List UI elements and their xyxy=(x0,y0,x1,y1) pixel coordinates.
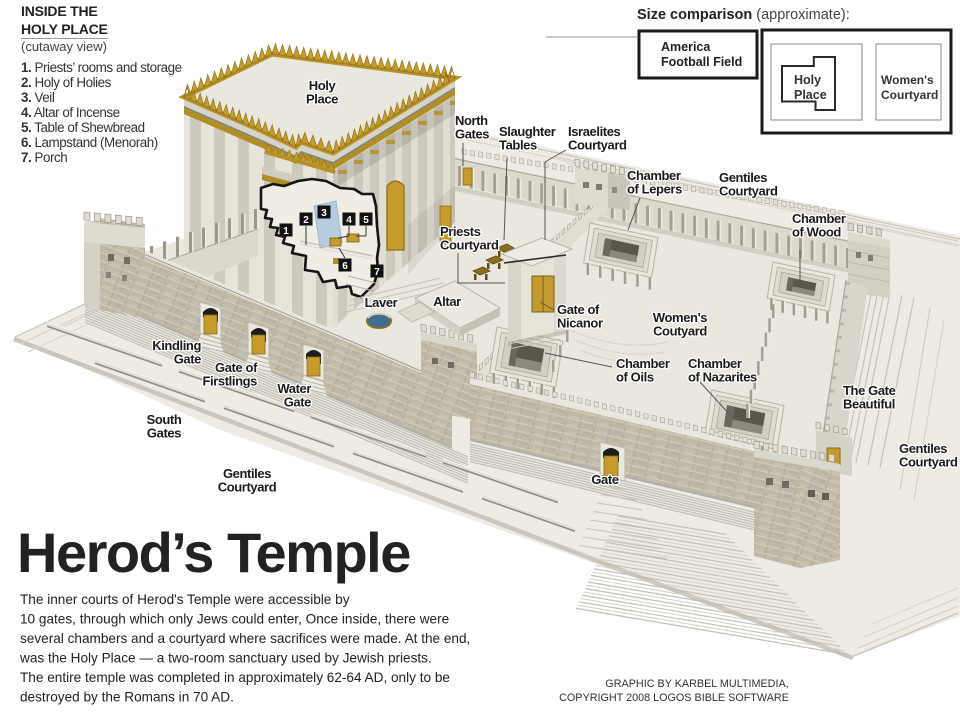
svg-text:2. Holy of Holies: 2. Holy of Holies xyxy=(21,75,112,90)
svg-text:GRAPHIC BY KARBEL MULTIMEDIA,: GRAPHIC BY KARBEL MULTIMEDIA, xyxy=(605,678,788,690)
svg-text:Altar: Altar xyxy=(433,294,461,309)
svg-text:Gate: Gate xyxy=(284,395,311,410)
svg-text:Coutyard: Coutyard xyxy=(653,324,707,339)
svg-text:3: 3 xyxy=(321,208,327,219)
svg-text:Courtyard: Courtyard xyxy=(440,238,499,253)
svg-text:Holy: Holy xyxy=(794,73,821,87)
svg-text:Beautiful: Beautiful xyxy=(843,397,895,412)
svg-text:1. Priests’ rooms and storage: 1. Priests’ rooms and storage xyxy=(21,60,182,75)
svg-text:Courtyard: Courtyard xyxy=(568,138,627,153)
svg-text:The inner courts of Herod's Te: The inner courts of Herod's Temple were … xyxy=(20,592,350,607)
svg-text:several chambers and a courtya: several chambers and a courtyard where s… xyxy=(20,631,470,646)
svg-text:Gates: Gates xyxy=(455,127,489,142)
svg-text:5. Table of Shewbread: 5. Table of Shewbread xyxy=(21,120,145,135)
svg-text:6. Lampstand (Menorah): 6. Lampstand (Menorah) xyxy=(21,135,158,150)
svg-text:Gate: Gate xyxy=(591,472,618,487)
svg-text:Tables: Tables xyxy=(499,138,537,153)
svg-text:COPYRIGHT 2008 LOGOS BIBLE SOF: COPYRIGHT 2008 LOGOS BIBLE SOFTWARE xyxy=(559,692,789,704)
svg-text:5: 5 xyxy=(363,215,369,226)
svg-text:INSIDE THE: INSIDE THE xyxy=(21,3,98,19)
svg-text:America: America xyxy=(661,40,711,54)
svg-text:Place: Place xyxy=(306,92,338,107)
svg-text:HOLY PLACE: HOLY PLACE xyxy=(21,21,108,37)
svg-text:of Oils: of Oils xyxy=(616,370,654,385)
svg-text:Courtyard: Courtyard xyxy=(899,455,958,470)
svg-text:3. Veil: 3. Veil xyxy=(21,90,55,105)
svg-text:7. Porch: 7. Porch xyxy=(21,150,67,165)
svg-text:was the Holy Place — a two-ro: was the Holy Place — a two-room sanctuar… xyxy=(19,651,432,666)
svg-text:of Lepers: of Lepers xyxy=(627,182,682,197)
svg-text:of Wood: of Wood xyxy=(792,225,841,240)
svg-text:2: 2 xyxy=(303,215,309,226)
svg-text:destroyed by the Romans in 70: destroyed by the Romans in 70 AD. xyxy=(20,690,234,705)
svg-text:Gate: Gate xyxy=(174,352,201,367)
svg-text:1: 1 xyxy=(283,226,289,237)
svg-text:Courtyard: Courtyard xyxy=(881,88,938,102)
svg-text:Laver: Laver xyxy=(365,295,398,310)
svg-text:Size comparison (approximate):: Size comparison (approximate): xyxy=(637,7,850,23)
svg-text:Courtyard: Courtyard xyxy=(719,184,778,199)
svg-text:Firstlings: Firstlings xyxy=(202,374,257,389)
svg-text:Courtyard: Courtyard xyxy=(218,480,277,495)
svg-text:of Nazarites: of Nazarites xyxy=(688,370,757,385)
svg-text:Nicanor: Nicanor xyxy=(557,316,603,331)
svg-text:Gates: Gates xyxy=(147,426,181,441)
svg-text:10 gates, through which only J: 10 gates, through which only Jews could … xyxy=(20,612,449,627)
svg-text:4: 4 xyxy=(346,215,352,226)
svg-text:(cutaway view): (cutaway view) xyxy=(21,39,107,54)
svg-text:Women's: Women's xyxy=(881,73,934,87)
svg-text:4. Altar of Incense: 4. Altar of Incense xyxy=(21,105,120,120)
svg-text:Herod’s Temple: Herod’s Temple xyxy=(17,521,410,584)
svg-text:7: 7 xyxy=(374,267,380,278)
svg-text:The entire temple was complete: The entire temple was completed in appro… xyxy=(20,670,450,685)
svg-text:6: 6 xyxy=(342,261,348,272)
svg-text:Football Field: Football Field xyxy=(661,55,742,69)
svg-text:Place: Place xyxy=(794,88,827,102)
